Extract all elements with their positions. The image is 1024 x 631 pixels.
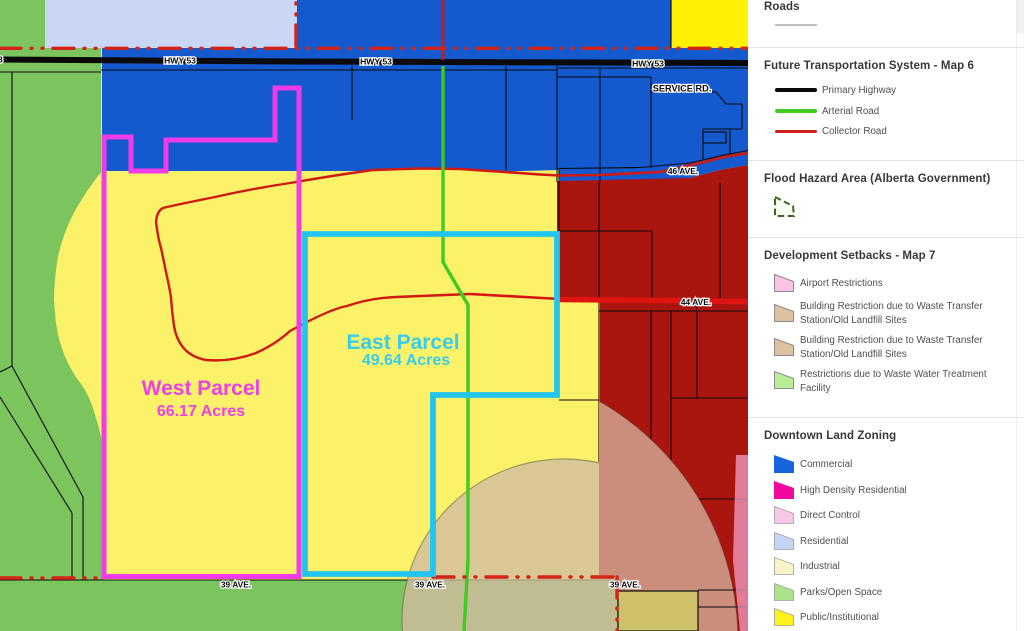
svg-text:39 AVE.: 39 AVE. [221, 580, 251, 590]
svg-text:SERVICE RD.: SERVICE RD. [653, 84, 712, 94]
svg-text:East Parcel: East Parcel [346, 331, 459, 354]
svg-text:HWY 53: HWY 53 [360, 57, 392, 67]
svg-text:49.64 Acres: 49.64 Acres [362, 352, 450, 369]
svg-text:39 AVE.: 39 AVE. [415, 580, 445, 590]
svg-text:66.17 Acres: 66.17 Acres [157, 403, 245, 420]
svg-text:53: 53 [0, 55, 3, 65]
svg-text:46 AVE.: 46 AVE. [668, 166, 698, 176]
svg-text:39 AVE.: 39 AVE. [610, 580, 640, 590]
svg-text:44 AVE.: 44 AVE. [681, 297, 711, 307]
svg-text:HWY 53: HWY 53 [632, 59, 664, 69]
svg-text:West Parcel: West Parcel [142, 377, 261, 400]
svg-text:HWY 53: HWY 53 [164, 56, 196, 66]
